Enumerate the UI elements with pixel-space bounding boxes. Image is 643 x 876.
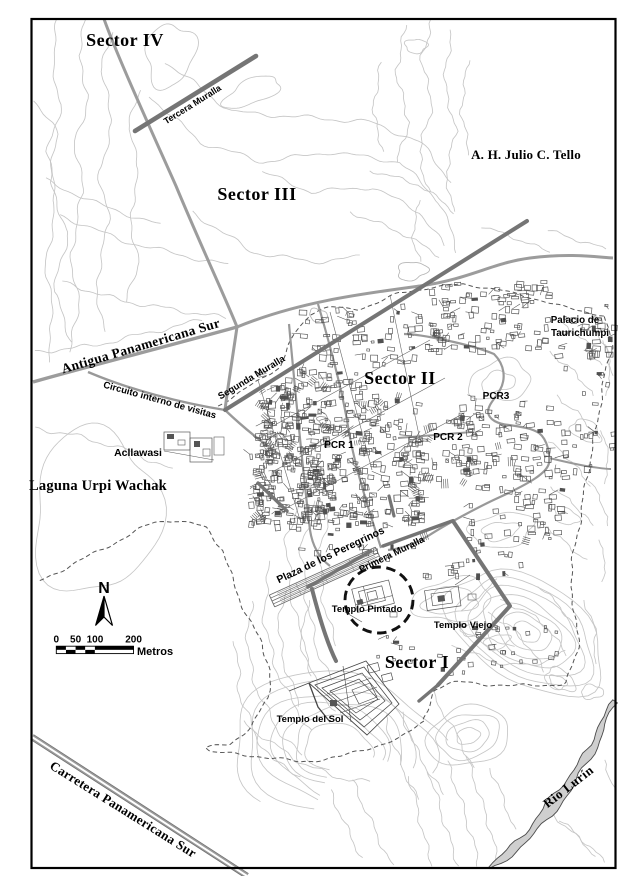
svg-text:Templo del Sol: Templo del Sol [277, 714, 344, 725]
svg-text:PCR 1: PCR 1 [324, 440, 354, 451]
svg-text:Sector II: Sector II [364, 368, 436, 388]
svg-text:N: N [98, 580, 110, 597]
svg-text:PCR3: PCR3 [483, 391, 510, 402]
svg-text:Laguna Urpi Wachak: Laguna Urpi Wachak [29, 478, 168, 494]
svg-text:Palacio de: Palacio de [551, 315, 600, 326]
svg-text:PCR 2: PCR 2 [433, 432, 463, 443]
svg-text:0: 0 [54, 635, 60, 646]
svg-text:Sector III: Sector III [217, 184, 296, 204]
svg-text:Sector I: Sector I [385, 652, 449, 672]
svg-text:50: 50 [70, 635, 82, 646]
svg-text:A. H. Julio C. Tello: A. H. Julio C. Tello [471, 147, 581, 162]
svg-text:Metros: Metros [137, 646, 173, 658]
svg-text:200: 200 [125, 635, 142, 646]
svg-text:Taurichumpi: Taurichumpi [551, 328, 609, 339]
svg-text:Templo Pintado: Templo Pintado [332, 604, 403, 615]
svg-text:Templo Viejo: Templo Viejo [434, 620, 492, 631]
svg-text:100: 100 [87, 635, 104, 646]
svg-text:Sector IV: Sector IV [86, 30, 164, 50]
svg-text:Acllawasi: Acllawasi [114, 447, 162, 459]
